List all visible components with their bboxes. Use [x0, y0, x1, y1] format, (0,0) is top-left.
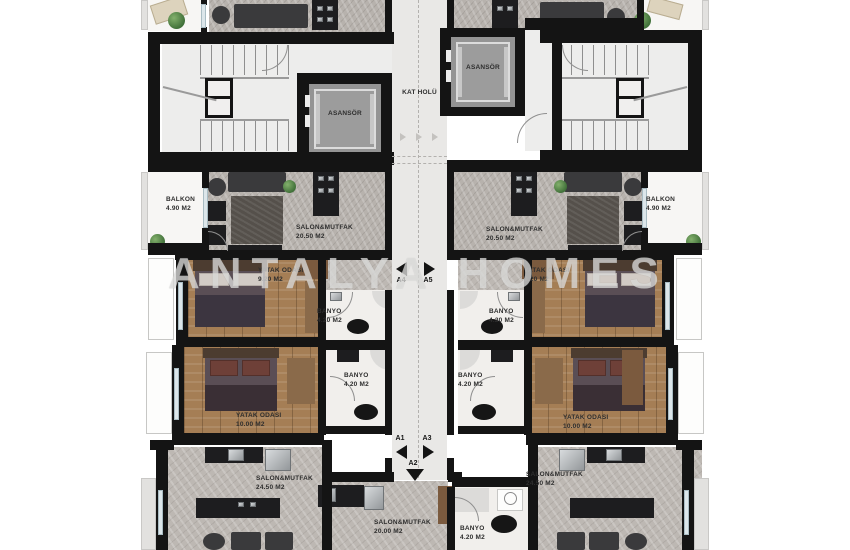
railing: [702, 0, 709, 30]
wardrobe: [287, 358, 315, 404]
kitchen-counter: [570, 498, 654, 518]
elevator-rail: [370, 94, 374, 144]
window: [668, 368, 673, 420]
dining-stool: [203, 533, 225, 550]
fridge: [265, 449, 291, 471]
wall: [322, 440, 332, 550]
wall: [148, 32, 160, 164]
cooktop: [238, 502, 244, 507]
cooktop: [318, 188, 324, 193]
wall: [688, 30, 702, 163]
cooktop: [497, 6, 503, 11]
room-label-salon-mid-right: SALON&MUTFAK20.50 M2: [486, 226, 543, 244]
wall: [385, 0, 392, 32]
wall: [318, 345, 326, 435]
room-label-yatak-big-right: YATAK ODASI10.00 M2: [563, 414, 608, 432]
fridge: [559, 449, 585, 471]
door-swing: [517, 113, 547, 143]
floor-plan: ASANSÖR ASANSÖR: [0, 0, 850, 550]
cooktop: [516, 188, 522, 193]
cooktop: [516, 176, 522, 181]
wall: [637, 0, 644, 30]
direction-chevron-icon: [400, 133, 406, 141]
bed-blanket: [205, 385, 277, 411]
wall: [526, 433, 678, 445]
expansion-joint-line: [392, 156, 447, 157]
dining-stool: [625, 533, 647, 550]
room-label-banyo-a5: BANYO4.20 M2: [489, 308, 514, 326]
armchair: [207, 201, 226, 221]
cooktop: [317, 17, 323, 22]
arrow-left-icon: [396, 445, 407, 459]
side-table: [624, 178, 642, 196]
plant: [168, 12, 185, 29]
toilet: [354, 404, 378, 420]
stair-railing: [560, 119, 649, 121]
bath-vanity: [491, 350, 513, 362]
wall: [447, 290, 454, 435]
railing: [141, 172, 148, 250]
unit-marker-a3: A3: [419, 435, 435, 442]
pillow: [242, 360, 270, 376]
wall: [525, 18, 640, 30]
cooktop: [328, 176, 334, 181]
bed-headboard: [203, 348, 279, 358]
railing: [141, 0, 148, 30]
wall: [540, 30, 700, 43]
arrow-right-icon: [423, 445, 434, 459]
direction-chevron-icon: [416, 133, 422, 141]
wall: [172, 433, 324, 445]
bed-blanket: [585, 295, 655, 327]
fridge: [364, 486, 384, 510]
toilet: [491, 515, 517, 533]
wall: [332, 472, 394, 482]
window: [174, 368, 179, 420]
wall: [641, 160, 648, 188]
kitchen-counter: [492, 0, 518, 28]
sink: [228, 449, 244, 461]
pillow: [210, 360, 238, 376]
wall: [458, 426, 525, 434]
wardrobe: [535, 358, 563, 404]
wall: [148, 160, 392, 172]
cooktop: [250, 502, 256, 507]
cooktop: [328, 188, 334, 193]
wall: [148, 32, 394, 44]
stairs: [200, 121, 289, 151]
rug: [567, 196, 619, 244]
cooktop: [507, 6, 513, 11]
toilet: [347, 319, 369, 334]
kitchen-counter: [196, 498, 280, 518]
wall: [528, 337, 674, 347]
watermark: ANTALYA HOMES: [168, 249, 669, 299]
wall: [458, 340, 525, 350]
cooktop: [327, 6, 333, 11]
corridor-floor: [392, 0, 447, 480]
room-label-banyo-a3: BANYO4.20 M2: [458, 372, 483, 390]
plant: [554, 180, 567, 193]
dining-table: [557, 532, 585, 550]
unit-marker-a2: A2: [405, 460, 421, 467]
sink: [606, 449, 622, 461]
rug: [231, 196, 283, 244]
sofa: [228, 172, 286, 192]
cooktop: [327, 17, 333, 22]
elevator-left-label: ASANSÖR: [309, 110, 381, 119]
wall: [385, 290, 392, 435]
terrace-outline: [146, 352, 172, 434]
wall: [528, 440, 538, 550]
wall: [447, 487, 455, 550]
sofa: [564, 172, 622, 192]
terrace-outline: [676, 258, 702, 340]
stairs: [560, 121, 649, 151]
unit-marker-a1: A1: [392, 435, 408, 442]
railing: [694, 478, 709, 550]
room-label-salon-bottom-left: SALON&MUTFAK24.50 M2: [256, 475, 313, 493]
wall: [452, 477, 530, 487]
wall: [447, 0, 454, 28]
plant: [283, 180, 296, 193]
direction-chevron-icon: [432, 133, 438, 141]
wall: [325, 426, 392, 434]
elevator-car-left-inner: [314, 89, 376, 149]
cooktop: [317, 6, 323, 11]
cooktop: [318, 176, 324, 181]
kitchen-counter: [312, 0, 338, 30]
room-label-balkon-left: BALKON4.90 M2: [166, 196, 195, 214]
cooktop: [526, 188, 532, 193]
wall: [325, 340, 392, 350]
elevator-right-label: ASANSÖR: [451, 64, 515, 73]
room-label-yatak-big-left: YATAK ODASI10.00 M2: [236, 412, 281, 430]
wall: [385, 172, 392, 258]
armchair: [624, 201, 643, 221]
wall: [552, 43, 562, 150]
corridor-center-line: [418, 0, 419, 478]
bed-blanket: [195, 295, 265, 327]
side-table: [208, 178, 226, 196]
stair-railing: [200, 119, 289, 121]
room-label-salon-bottom-center: SALON&MUTFAK20.00 M2: [374, 519, 431, 537]
wall: [447, 172, 454, 258]
kitchen-counter: [313, 170, 339, 216]
toilet: [472, 404, 496, 420]
window: [684, 490, 689, 535]
room-label-salon-mid-left: SALON&MUTFAK20.50 M2: [296, 224, 353, 242]
wall: [447, 160, 702, 172]
elevator-door-mark: [446, 50, 451, 62]
bath-vanity: [337, 350, 359, 362]
elevator-rail: [316, 94, 320, 144]
room-label-balkon-right: BALKON4.90 M2: [646, 196, 675, 214]
expansion-joint-line: [392, 163, 447, 164]
dining-table: [265, 532, 293, 550]
wall: [176, 337, 322, 347]
wall: [524, 345, 532, 435]
railing: [702, 172, 709, 250]
sofa: [234, 4, 308, 28]
room-label-banyo-a2: BANYO4.20 M2: [460, 525, 485, 543]
terrace-outline: [678, 352, 704, 434]
window: [201, 4, 206, 28]
cooktop: [526, 176, 532, 181]
kitchen-counter: [511, 170, 537, 216]
room-label-banyo-a1: BANYO4.20 M2: [344, 372, 369, 390]
window: [203, 188, 208, 228]
railing: [141, 478, 156, 550]
window: [158, 490, 163, 535]
wall: [202, 160, 209, 188]
elevator-door-mark: [305, 95, 310, 107]
washing-machine-door: [504, 492, 517, 505]
hall-label: KAT HOLÜ: [392, 89, 447, 98]
wardrobe: [622, 350, 643, 405]
room-label-banyo-a4: BANYO4.20 M2: [317, 308, 342, 326]
dining-table: [589, 532, 619, 550]
room-label-salon-bottom-right: SALON&MUTFAK24.50 M2: [526, 471, 583, 489]
arrow-down-icon: [406, 469, 424, 481]
dining-table: [231, 532, 261, 550]
side-table: [212, 6, 230, 24]
pillow: [578, 360, 606, 376]
